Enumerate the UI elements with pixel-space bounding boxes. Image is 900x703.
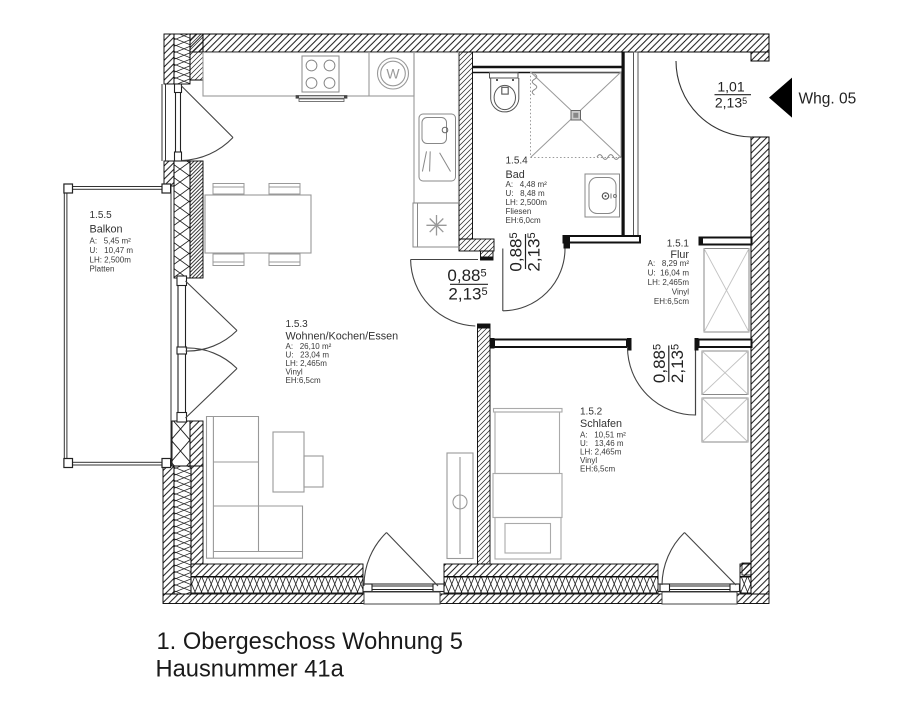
svg-text:1.5.5: 1.5.5 xyxy=(90,210,113,221)
svg-text:Vinyl: Vinyl xyxy=(672,288,689,297)
svg-text:EH:6,5cm: EH:6,5cm xyxy=(654,297,689,306)
svg-text:Balkon: Balkon xyxy=(90,224,123,236)
svg-text:A: 5,45 m²: A: 5,45 m² xyxy=(90,237,132,246)
svg-text:Fliesen: Fliesen xyxy=(506,207,532,216)
svg-text:EH:6,0cm: EH:6,0cm xyxy=(506,216,541,225)
svg-text:LH: 2,500m: LH: 2,500m xyxy=(506,198,548,207)
svg-text:1.5.2: 1.5.2 xyxy=(580,407,603,418)
svg-text:A: 4,48 m²: A: 4,48 m² xyxy=(506,180,548,189)
svg-text:W: W xyxy=(386,66,400,82)
svg-text:1.5.4: 1.5.4 xyxy=(506,156,529,167)
svg-text:Hausnummer 41a: Hausnummer 41a xyxy=(156,657,345,683)
svg-text:U: 8,48 m: U: 8,48 m xyxy=(506,189,545,198)
svg-text:1,01: 1,01 xyxy=(717,79,744,95)
svg-text:1. Obergeschoss Wohnung 5: 1. Obergeschoss Wohnung 5 xyxy=(157,629,463,655)
svg-text:1.5.3: 1.5.3 xyxy=(286,319,309,330)
svg-text:1.5.1: 1.5.1 xyxy=(667,239,690,250)
svg-text:Platten: Platten xyxy=(90,265,115,274)
svg-text:LH: 2,500m: LH: 2,500m xyxy=(90,256,132,265)
svg-text:Wohnen/Kochen/Essen: Wohnen/Kochen/Essen xyxy=(286,331,399,343)
svg-text:LH: 2,465m: LH: 2,465m xyxy=(648,278,690,287)
svg-text:EH:6,5cm: EH:6,5cm xyxy=(580,465,615,474)
svg-text:Whg. 05: Whg. 05 xyxy=(799,91,857,108)
svg-text:Schlafen: Schlafen xyxy=(580,418,622,430)
svg-text:U: 16,04 m: U: 16,04 m xyxy=(648,269,690,278)
svg-text:EH:6,5cm: EH:6,5cm xyxy=(286,376,321,385)
svg-text:A: 8,29 m²: A: 8,29 m² xyxy=(648,259,690,268)
svg-text:U: 10,47 m: U: 10,47 m xyxy=(90,246,134,255)
